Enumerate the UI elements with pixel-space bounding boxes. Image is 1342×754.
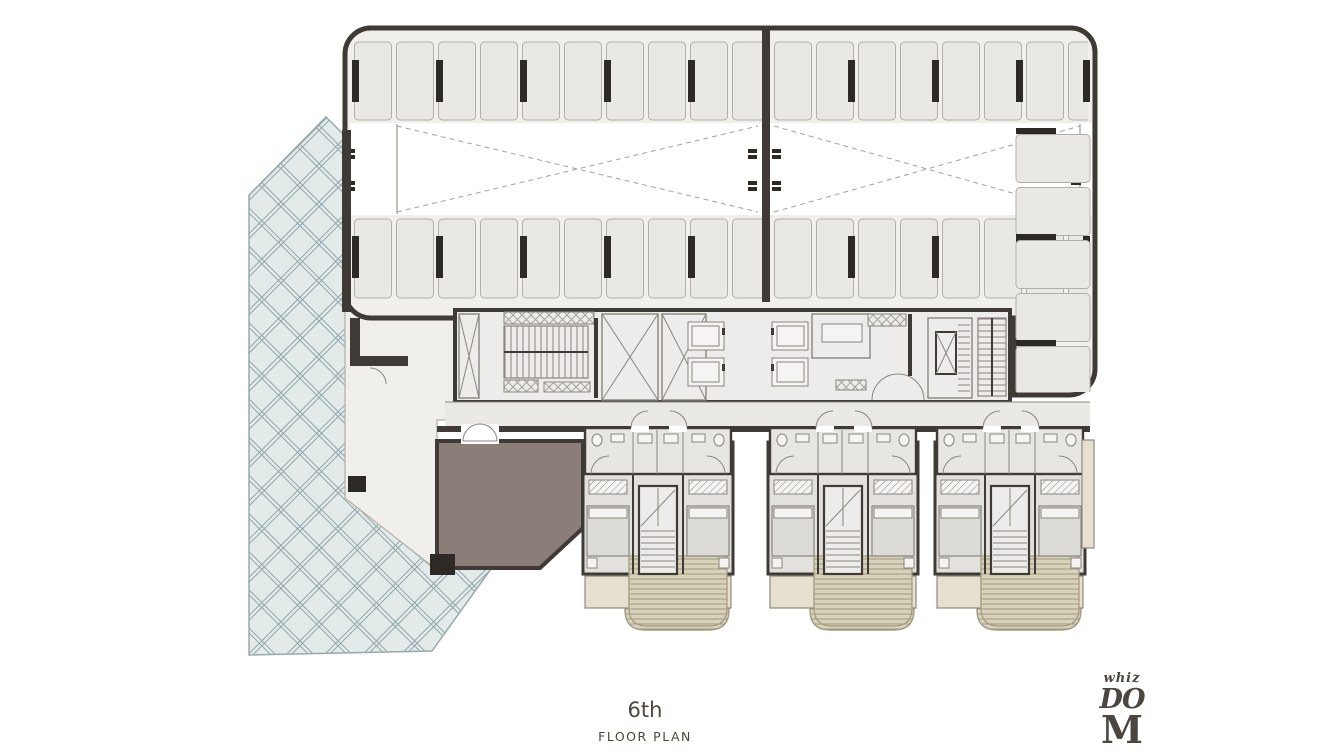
drive-aisle <box>345 123 1092 215</box>
brown-unit <box>430 424 583 575</box>
unit-pair-1 <box>583 428 733 630</box>
floor-number-label: 6th <box>560 698 730 722</box>
floor-plan-drawing <box>0 0 1342 754</box>
logo-letter-m: M <box>1080 711 1164 749</box>
terrace-column <box>348 476 366 492</box>
parking-stalls-top-row <box>352 40 1090 122</box>
core-stair-west <box>504 326 588 378</box>
core-stair-east <box>978 318 1006 396</box>
lift-stair-core <box>455 310 1010 402</box>
central-dividing-wall <box>762 30 770 302</box>
scissor-stair-lift <box>928 318 972 398</box>
service-room <box>812 314 870 358</box>
west-edge-wall <box>342 130 351 312</box>
lift-shaft-1 <box>602 314 658 400</box>
floor-plan-page: 6th FLOOR PLAN whiz DO M <box>0 0 1342 754</box>
east-edge-balcony <box>1082 440 1094 548</box>
unit-pair-2 <box>768 428 918 630</box>
unit-pair-3 <box>935 428 1085 630</box>
parking-stalls-bottom-row <box>352 216 1090 300</box>
whizdom-logo: whiz DO M <box>1080 672 1164 749</box>
floor-plan-label: FLOOR PLAN <box>560 729 730 744</box>
parking-stalls-right <box>1014 128 1092 392</box>
plan-caption: 6th FLOOR PLAN <box>560 698 730 744</box>
